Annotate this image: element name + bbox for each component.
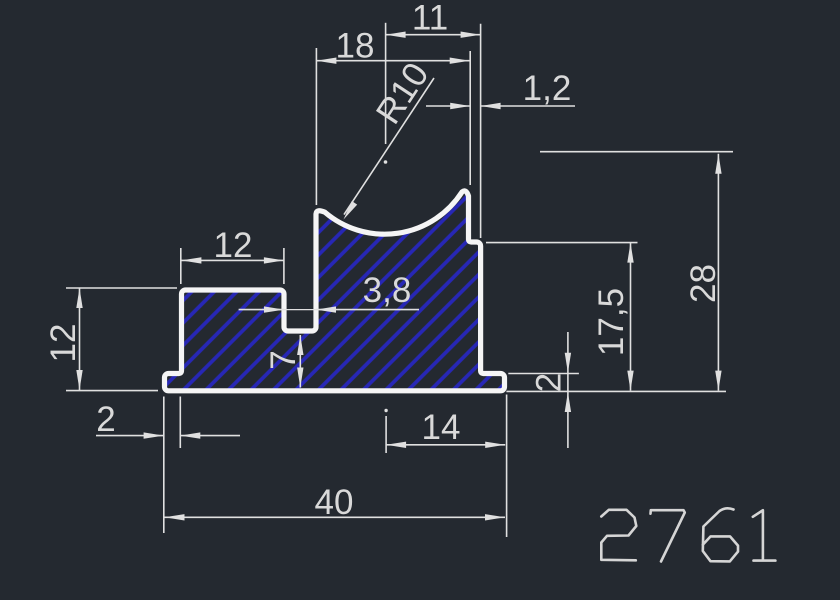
svg-text:17,5: 17,5 [592, 288, 631, 356]
svg-text:14: 14 [422, 408, 461, 447]
svg-text:2: 2 [530, 373, 569, 392]
svg-text:40: 40 [315, 483, 354, 522]
svg-text:18: 18 [336, 26, 375, 65]
svg-text:2: 2 [96, 400, 115, 439]
svg-text:1,2: 1,2 [523, 69, 572, 108]
svg-text:12: 12 [214, 226, 253, 265]
svg-text:28: 28 [684, 264, 723, 303]
svg-text:7: 7 [264, 350, 303, 369]
svg-text:12: 12 [44, 324, 83, 363]
svg-text:3,8: 3,8 [363, 271, 412, 310]
svg-text:11: 11 [412, 0, 448, 38]
